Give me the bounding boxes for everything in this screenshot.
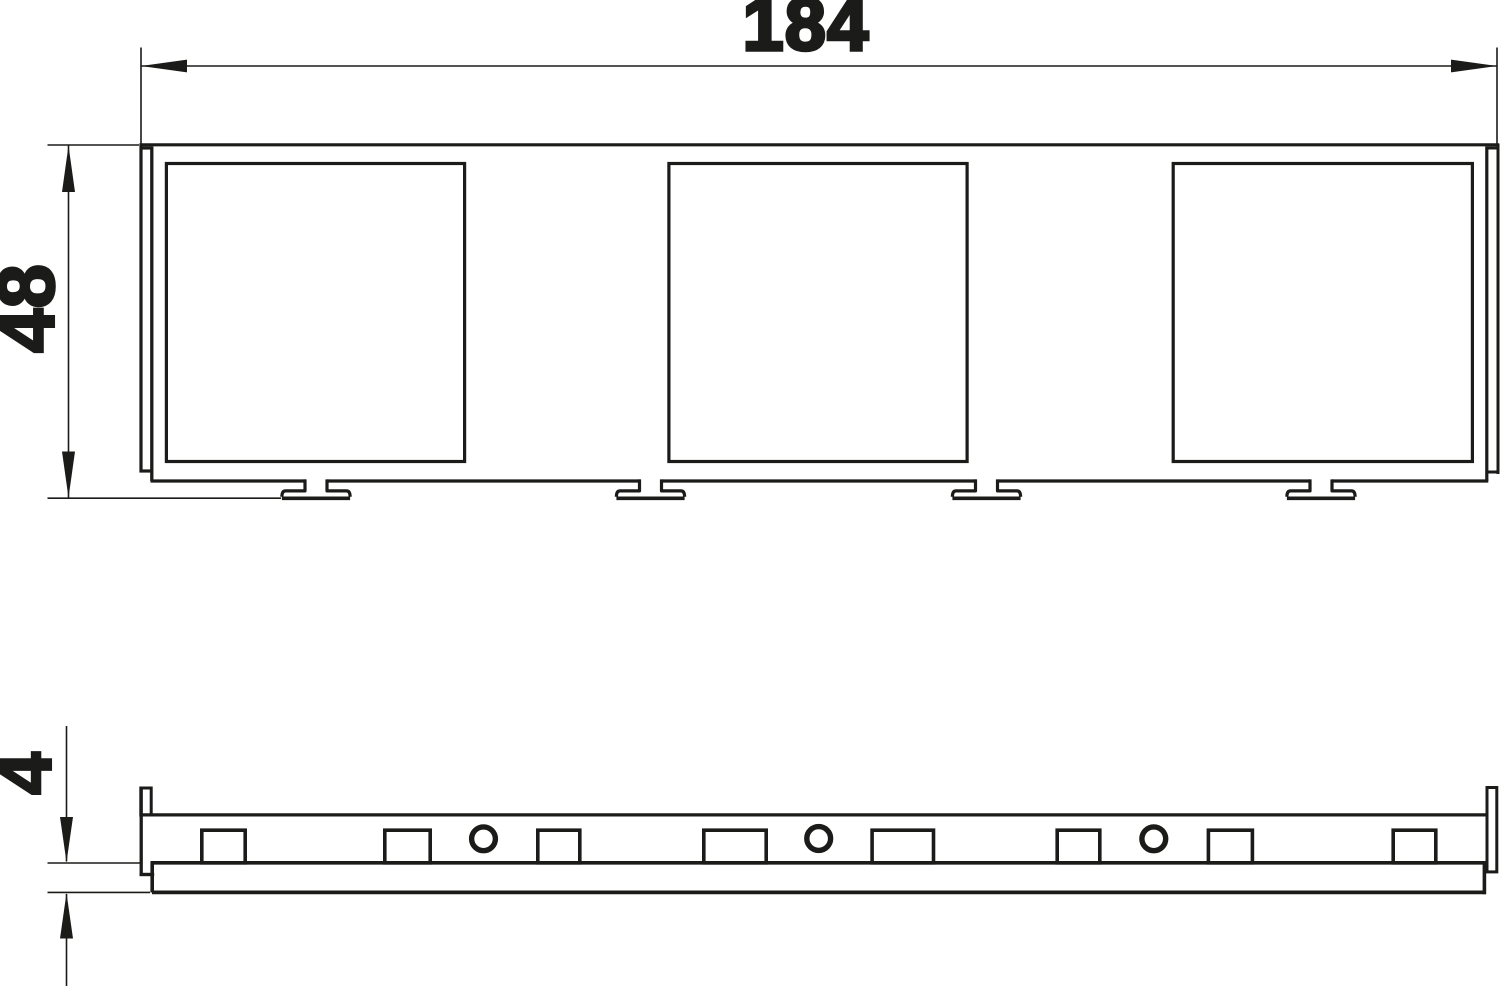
svg-text:184: 184	[742, 0, 869, 66]
svg-text:4: 4	[0, 752, 68, 795]
svg-text:48: 48	[0, 264, 71, 353]
